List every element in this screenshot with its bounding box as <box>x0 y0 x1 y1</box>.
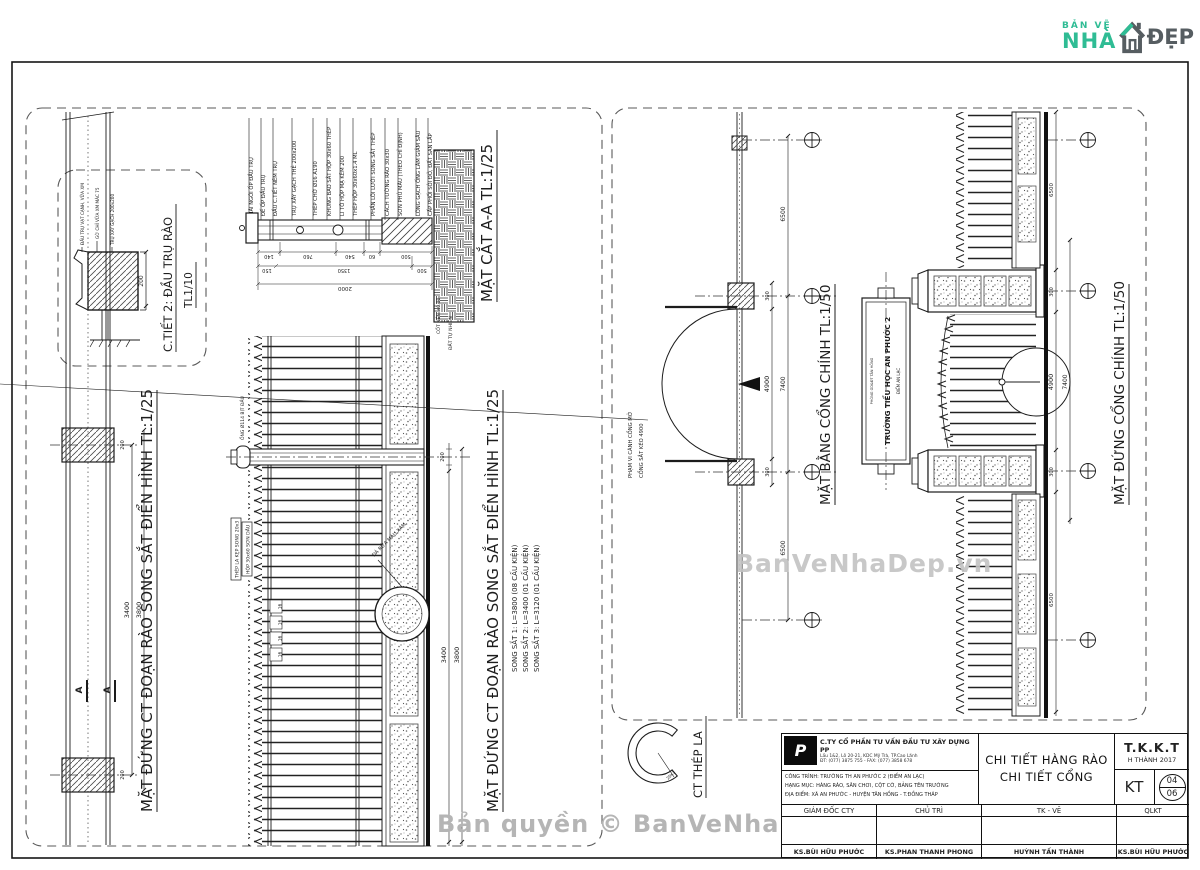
detail2-label-2: GỜ CHỈ VỮA XM MÁC 75 <box>95 187 100 239</box>
gate-pillar-top <box>912 265 1044 317</box>
detail2-title: C.TIẾT 2: ĐẦU TRỤ RÀO <box>159 217 175 352</box>
header-designer: TK - VẼ <box>982 805 1117 816</box>
gate-elev-dim-wing-1: 6500 <box>1049 183 1055 197</box>
fence-plan-dim-span: 3400 <box>123 602 131 619</box>
sheet-title-line2: CHI TIẾT CỔNG <box>1000 769 1093 786</box>
fence-elev-post-label: ỐNG Ø114 BỊT ĐẦU <box>238 396 246 440</box>
gate-sign-top: PHÒNG GD&ĐT TÂN HỒNG <box>869 357 874 404</box>
sheet-count: 06 <box>1160 788 1185 801</box>
fence-plan-dim-post-1: 200 <box>120 440 126 450</box>
gate-fence-wing-top <box>956 112 1040 268</box>
sec-label-9: PHẦN LÕI LƯỚI SONG SẮT THÉP <box>369 133 377 216</box>
gate-pillar-bottom <box>912 445 1044 497</box>
fence-plan-section-mark-1: A <box>75 686 85 693</box>
gate-plan-leader-1: PHẠM VI CÁNH CỔNG MỞ <box>626 412 634 479</box>
title-block-company-cell: P C.TY CỔ PHẦN TƯ VẤN ĐẦU TƯ XÂY DỰNG PP… <box>782 734 979 804</box>
company-logo: P <box>784 736 817 765</box>
fence-elev-sub-1: SONG SẮT 1: L=3800 (08 CẤU KIỆN) <box>509 544 519 672</box>
detail2-dim: 200 <box>138 275 145 287</box>
brand-logo-text: BẢN VẼ NHÀ <box>1062 22 1116 52</box>
fence-plan-section-mark-2: A <box>103 686 113 693</box>
fence-elev-dim-total: 3800 <box>453 647 461 664</box>
sec-label-5: THÉP CHỜ Ø16 A190 <box>311 161 319 217</box>
gate-plan-dim-post-2: 300 <box>765 467 771 477</box>
name-director: KS.BÙI HỮU PHƯỚC <box>782 845 877 859</box>
sec-label-12: LÓNG GẠCH ỐNG LÀM GIẢM SÂU <box>414 130 422 216</box>
logo-line3: ĐẸP <box>1147 25 1194 49</box>
sec-label-13: CẤP PHỐI SỎI ĐỎ, ĐẤT SAN LẤP <box>426 133 434 216</box>
watermark-center: BanVeNhaDep.vn <box>735 549 992 578</box>
design-stage-sub: H THÀNH 2017 <box>1128 756 1177 764</box>
sec-dim1-1: 140 <box>264 253 274 259</box>
gate-plan-dim-post-1: 300 <box>765 291 771 301</box>
sec-label-10: CÁCH TƯỜNG RÀO 30x30 <box>384 149 391 216</box>
title-block-header-row: GIÁM ĐỐC CTY CHỦ TRÌ TK - VẼ QLKT <box>782 804 1189 817</box>
sec-dim2-2: 1350 <box>338 267 351 273</box>
gate-elev-dim-post-1: 300 <box>1049 287 1055 297</box>
gate-plan-dim-open: 4900 <box>763 376 771 393</box>
sheet-number-badge: 04 06 <box>1159 774 1186 801</box>
gate-elev-dim-open: 4900 <box>1047 374 1055 391</box>
sec-label-8: THÉP HỘP 30x60x1.4 ML <box>351 151 359 217</box>
title-block-right-cell: T.K.K.T H THÀNH 2017 KT 04 06 <box>1115 734 1189 804</box>
sec-dim-total: 2000 <box>338 285 352 291</box>
gate-plan-title: MẶT BẰNG CỔNG CHÍNH TL:1/50 <box>815 285 834 505</box>
title-block: P C.TY CỔ PHẦN TƯ VẤN ĐẦU TƯ XÂY DỰNG PP… <box>781 733 1188 858</box>
detail2-scale: TL1/10 <box>183 272 195 309</box>
fence-elev-sub-2: SONG SẮT 2: L=3400 (01 CẤU KIỆN) <box>520 544 530 672</box>
gate-elev-title: MẶT ĐỨNG CỔNG CHÍNH TL:1/50 <box>1109 281 1128 505</box>
header-director: GIÁM ĐỐC CTY <box>782 805 877 816</box>
gate-elev-dim-wing-2: 6500 <box>1049 593 1055 607</box>
fence-elev-tick-1: 16 <box>278 604 284 610</box>
sec-label-1: MÁI NGÓI ỐP ĐẦU TRỤ <box>247 157 255 216</box>
sec-dim2-3: 500 <box>417 267 427 273</box>
sec-dim1-2: 760 <box>303 253 313 259</box>
sec-label-2: ĐẾ ỐP ĐẦU TRỤ <box>259 174 267 216</box>
fence-section-title: MẶT CẮT A-A TL:1/25 <box>475 144 496 302</box>
fence-elev-sub-3: SONG SẮT 3: L=3120 (01 CẤU KIỆN) <box>531 544 541 672</box>
title-block-signature-row <box>782 817 1189 844</box>
fence-plan-title: MẶT ĐỨNG CT ĐOẠN RÀO SONG SẮT ĐIỂN HÌNH … <box>135 389 156 812</box>
fence-elev-tick-2: 16 <box>278 620 284 626</box>
sheet-code: KT <box>1115 770 1155 804</box>
fence-section-drawing: MÁI NGÓI ỐP ĐẦU TRỤ ĐẾ ỐP ĐẦU TRỤ ĐẦU C.… <box>240 118 498 350</box>
logo-line2: NHÀ <box>1062 31 1116 52</box>
company-address-2: ĐT: (077) 3875 755 - FAX: (077) 3858 678 <box>820 759 976 765</box>
detail2-label-1: ĐẦU TRỤ VẠT CẠNH, VỮA XM <box>80 183 85 245</box>
sec-dim2-1: 150 <box>262 267 272 273</box>
house-icon <box>1114 13 1150 61</box>
gate-plan-dim-wing-1: 6500 <box>780 206 787 221</box>
gate-elev-dim-post-2: 300 <box>1049 467 1055 477</box>
thep-la-title: CT THÉP LA <box>690 731 705 798</box>
sec-label-3: ĐẦU C.TIẾT NÊM TRỤ <box>271 161 279 216</box>
project-location: ĐỊA ĐIỂM: XÃ AN PHƯỚC - HUYỆN TÂN HỒNG -… <box>785 791 975 800</box>
detail2-drawing: ĐẦU TRỤ VẠT CẠNH, VỮA XM GỜ CHỈ VỮA XM M… <box>74 183 196 352</box>
sec-label-4: TRỤ XÂY GẠCH THẺ 200x200 <box>290 141 298 217</box>
sec-label-6: KHUNG BAO SẮT HỘP 30x60 THÉP <box>325 127 333 216</box>
company-name: C.TY CỔ PHẦN TƯ VẤN ĐẦU TƯ XÂY DỰNG PP <box>820 739 976 754</box>
sec-dim1-3: 540 <box>345 253 355 259</box>
sec-label-11: SƠN PHỦ MÀU (THEO CHỈ ĐỊNH) <box>396 132 404 216</box>
header-lead: CHỦ TRÌ <box>877 805 982 816</box>
sec-dim1-5: 500 <box>401 253 411 259</box>
fence-plan-drawing: A A 3400 3800 200 200 MẶT ĐỨNG CT ĐOẠN R… <box>50 112 157 845</box>
fence-elevation-drawing: ỐNG Ø114 BỊT ĐẦU ĐÁ RỬA MÀU XÁM THÉP LA … <box>226 336 541 846</box>
design-stage: T.K.K.T <box>1124 740 1180 755</box>
fence-plan-dim-post-2: 200 <box>120 770 126 780</box>
fence-elev-dim-post: 200 <box>440 452 446 462</box>
sec-label-7: LI TÔ HỘP MẠ KẼM 200 <box>339 156 346 216</box>
gate-sign-sub: ĐIỂM AN LẠC <box>896 368 901 394</box>
title-block-names-row: KS.BÙI HỮU PHƯỚC KS.PHAN THANH PHONG HUỲ… <box>782 844 1189 859</box>
fence-elev-tick-3: 16 <box>278 636 284 642</box>
project-name: CÔNG TRÌNH: TRƯỜNG TH AN PHƯỚC 2 (ĐIỂM A… <box>785 773 975 782</box>
thep-la-drawing: 20x3 CT THÉP LA <box>628 716 706 798</box>
gate-plan-leader-2: CỔNG SẮT KÉO 4900 <box>637 423 645 478</box>
fence-elev-tick-4: 16 <box>278 652 284 658</box>
fence-elev-dim-span: 3400 <box>440 647 448 664</box>
sec-dim1-4: 60 <box>369 253 375 259</box>
sheet-number: 04 <box>1160 775 1185 788</box>
sheet-title-line1: CHI TIẾT HÀNG RÀO <box>985 752 1108 769</box>
sheet-title-cell: CHI TIẾT HÀNG RÀO CHI TIẾT CỔNG <box>979 734 1115 804</box>
project-item: HẠNG MỤC: HÀNG RÀO, SÂN CHƠI, CỘT CỜ, BẢ… <box>785 782 975 791</box>
gate-plan-dim-total: 7400 <box>780 376 787 391</box>
drawing-sheet: ĐẦU TRỤ VẠT CẠNH, VỮA XM GỜ CHỈ VỮA XM M… <box>0 0 1200 870</box>
gate-fence-wing-bottom <box>956 494 1040 716</box>
header-qlkt: QLKT <box>1117 805 1189 816</box>
gate-elev-dim-total: 7400 <box>1062 374 1069 389</box>
name-designer: HUỲNH TẤN THÀNH <box>982 845 1117 859</box>
detail2-label-3: TRỤ XÂY GẠCH 200x200 <box>110 194 115 246</box>
gate-sign-main: TRƯỜNG TIỂU HỌC AN PHƯỚC 2 <box>882 317 892 445</box>
name-lead: KS.PHAN THANH PHONG <box>877 845 982 859</box>
gate-elevation-drawing: PHÒNG GD&ĐT TÂN HỒNG TRƯỜNG TIỂU HỌC AN … <box>862 110 1129 718</box>
name-qlkt: KS.BÙI HỮU PHƯỚC <box>1117 845 1189 859</box>
brand-logo: BẢN VẼ NHÀ ĐẸP <box>1062 10 1194 64</box>
fence-elev-title: MẶT ĐỨNG CT ĐOẠN RÀO SONG SẮT ĐIỂN HÌNH … <box>481 389 502 812</box>
